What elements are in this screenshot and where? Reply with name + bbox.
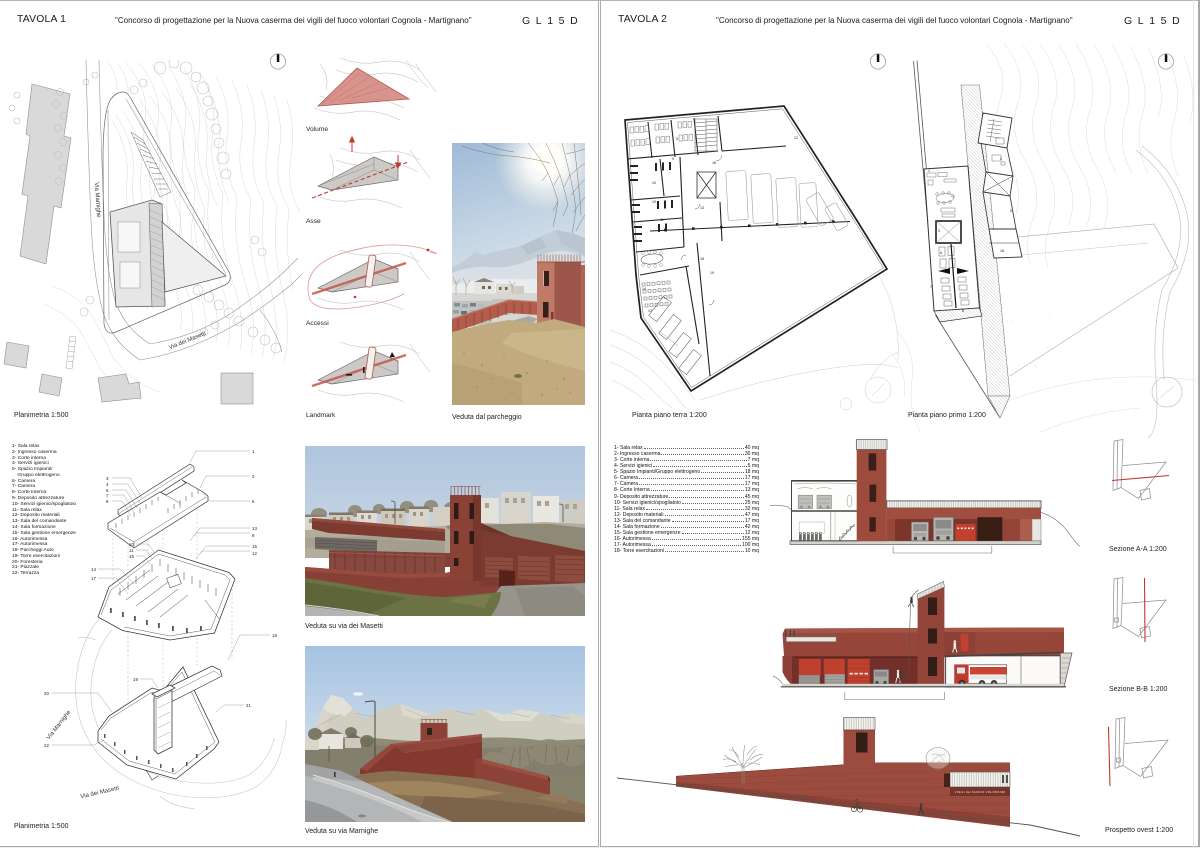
- svg-text:4: 4: [106, 482, 109, 487]
- svg-text:18: 18: [272, 633, 277, 638]
- svg-text:13: 13: [252, 526, 257, 531]
- svg-text:3: 3: [938, 229, 940, 233]
- svg-text:2: 2: [252, 474, 255, 479]
- svg-text:Via dei Masetti: Via dei Masetti: [80, 786, 120, 801]
- svg-text:19: 19: [133, 677, 138, 682]
- svg-text:Via Marnighe: Via Marnighe: [93, 182, 101, 218]
- svg-text:13: 13: [700, 206, 704, 210]
- svg-text:17: 17: [648, 309, 652, 313]
- svg-text:11: 11: [129, 548, 134, 553]
- svg-text:Via dei Masetti: Via dei Masetti: [168, 331, 207, 351]
- svg-text:8: 8: [106, 499, 109, 504]
- svg-text:10: 10: [129, 542, 134, 547]
- svg-text:3: 3: [106, 476, 109, 481]
- svg-text:5: 5: [252, 499, 255, 504]
- svg-text:15: 15: [129, 554, 134, 559]
- svg-text:14: 14: [91, 567, 96, 572]
- svg-text:1: 1: [252, 449, 255, 454]
- svg-text:21: 21: [246, 703, 251, 708]
- svg-text:16: 16: [252, 544, 257, 549]
- svg-text:18: 18: [700, 257, 704, 261]
- svg-text:12: 12: [794, 136, 798, 140]
- svg-text:7: 7: [930, 285, 932, 289]
- svg-text:20: 20: [44, 691, 49, 696]
- svg-text:17: 17: [91, 576, 96, 581]
- svg-text:12: 12: [252, 551, 257, 556]
- svg-text:16: 16: [712, 161, 716, 165]
- svg-text:7: 7: [106, 494, 109, 499]
- svg-text:14: 14: [642, 287, 646, 291]
- svg-text:9: 9: [252, 533, 255, 538]
- svg-text:22: 22: [44, 743, 49, 748]
- svg-text:10: 10: [652, 181, 656, 185]
- svg-text:VIGILI del FUOCO VOLONTARI: VIGILI del FUOCO VOLONTARI: [955, 790, 1006, 794]
- svg-text:6: 6: [940, 251, 942, 255]
- svg-text:Via Marnighe: Via Marnighe: [46, 709, 73, 741]
- svg-text:19: 19: [710, 271, 714, 275]
- svg-text:9: 9: [672, 157, 674, 161]
- svg-text:5: 5: [1010, 209, 1012, 213]
- svg-text:6: 6: [106, 488, 109, 493]
- svg-text:5: 5: [676, 137, 678, 141]
- svg-text:1: 1: [928, 169, 930, 173]
- svg-text:8: 8: [962, 309, 964, 313]
- svg-text:2: 2: [1000, 157, 1002, 161]
- svg-text:10: 10: [652, 200, 656, 204]
- svg-text:18: 18: [1000, 249, 1004, 253]
- svg-text:11: 11: [660, 218, 664, 222]
